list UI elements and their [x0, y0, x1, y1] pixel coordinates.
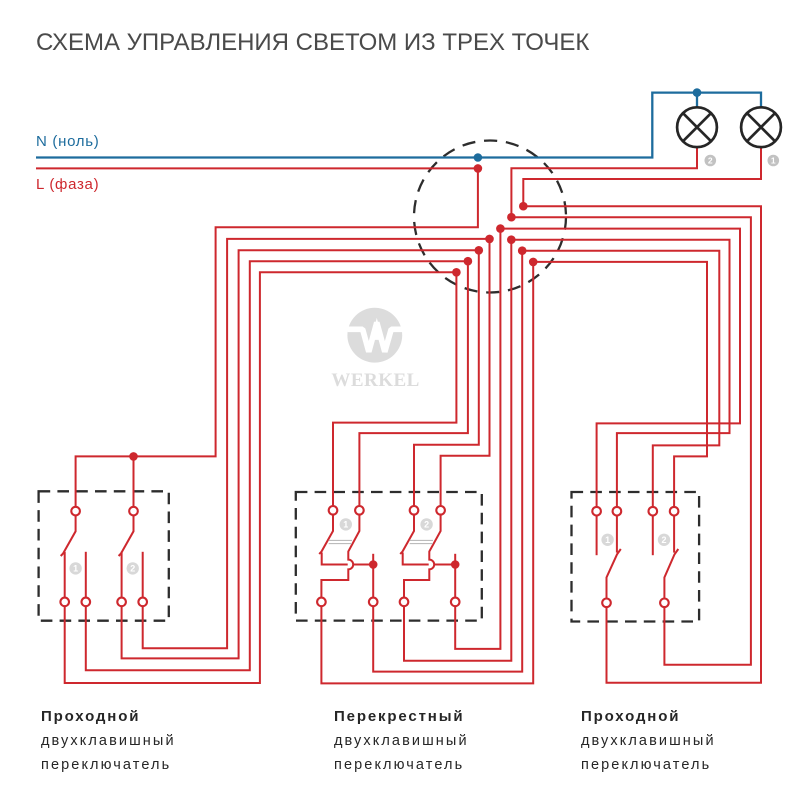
svg-text:2: 2	[130, 564, 135, 574]
svg-text:2: 2	[424, 520, 429, 530]
svg-text:1: 1	[343, 520, 348, 530]
svg-text:WERKEL: WERKEL	[331, 370, 420, 391]
svg-text:1: 1	[73, 564, 78, 574]
svg-text:1: 1	[771, 156, 776, 166]
svg-text:2: 2	[708, 156, 713, 166]
svg-text:1: 1	[605, 535, 610, 545]
svg-text:2: 2	[661, 535, 666, 545]
